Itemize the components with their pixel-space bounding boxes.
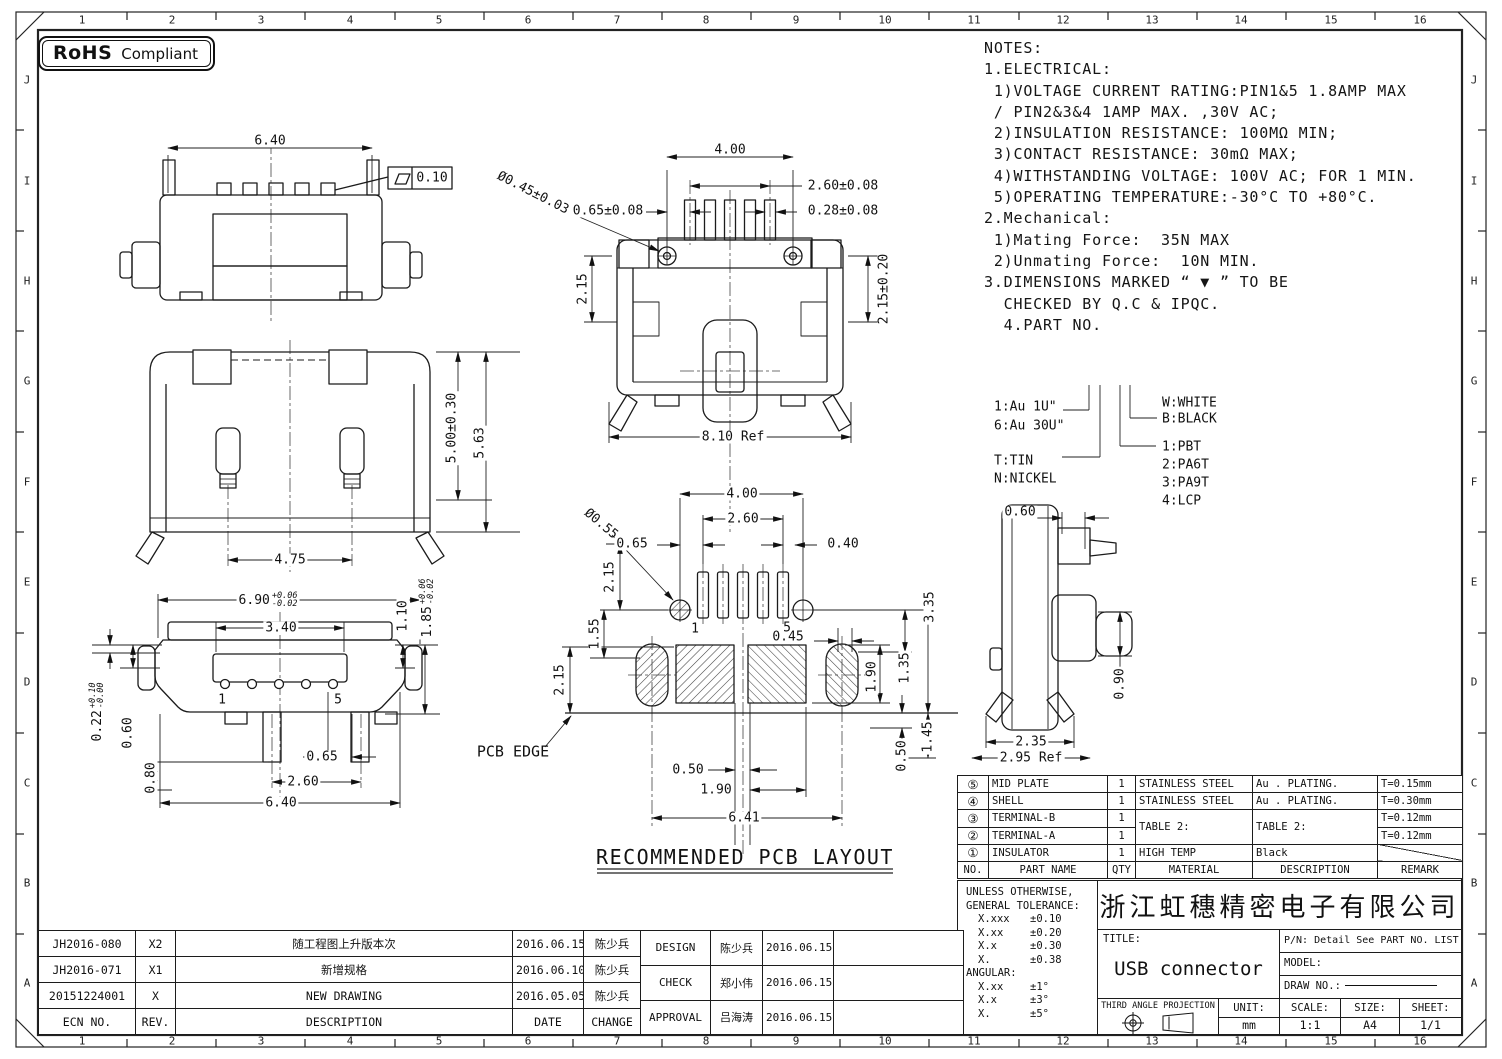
dim-front-3_40: 3.40	[263, 622, 298, 635]
draw-no-label: DRAW NO.:	[1284, 980, 1341, 992]
unit-value: mm	[1219, 1018, 1279, 1032]
dim-value: 1.85	[421, 606, 434, 637]
tree-color-option-1: W:WHITE	[1162, 396, 1217, 411]
rev-code: X1	[136, 957, 176, 983]
approval-table: DESIGN陈少兵2016.06.15 CHECK郑小伟2016.06.15 A…	[640, 930, 964, 1035]
ecn-no: JH2016-080	[39, 931, 136, 957]
dim-plan-0_65: 0.65±0.08	[571, 205, 645, 218]
zone-col-top: 13	[1145, 14, 1158, 27]
rohs-badge: RoHS Compliant	[38, 36, 215, 71]
revision-row: JH2016-071X1新增规格2016.06.10陈少兵	[39, 957, 641, 983]
rev-change-by: 陈少兵	[584, 983, 641, 1009]
projection-label: THIRD ANGLE PROJECTION	[1098, 1001, 1218, 1011]
note-line: 4.PART NO.	[984, 315, 1417, 336]
notes-block: NOTES: 1.ELECTRICAL: 1)VOLTAGE CURRENT R…	[984, 38, 1417, 336]
zone-col-top: 2	[169, 14, 176, 27]
pcb-edge-label: PCB EDGE	[477, 745, 549, 760]
dim-pcb-1_90-vert: 1.90	[866, 659, 879, 694]
dim-side-0_60: 0.60	[1002, 506, 1037, 519]
bom-part-name: TERMINAL-A	[989, 827, 1108, 844]
zone-row-right: G	[1471, 375, 1478, 388]
rev-date: 2016.06.15	[513, 931, 584, 957]
zone-col-bottom: 5	[436, 1035, 443, 1048]
bom-balloon: ③	[958, 810, 989, 827]
note-line: NOTES:	[984, 38, 1417, 59]
zone-row-left: F	[24, 476, 31, 489]
note-line: 5)OPERATING TEMPERATURE:-30°C TO +80°C.	[984, 187, 1417, 208]
zone-col-bottom: 16	[1413, 1035, 1426, 1048]
zone-row-left: D	[24, 676, 31, 689]
approval-blank	[834, 931, 964, 966]
third-angle-projection-icon	[1099, 1012, 1219, 1034]
zone-row-right: A	[1471, 977, 1478, 990]
front-pin5-label: 5	[334, 694, 342, 707]
tol-label: X.	[978, 1008, 1030, 1022]
bom-balloon: ②	[958, 827, 989, 844]
note-line: 4)WITHSTANDING VOLTAGE: 100V AC; FOR 1 M…	[984, 166, 1417, 187]
tree-material-option-4: 4:LCP	[1162, 494, 1201, 509]
tol-label: X.	[978, 954, 1030, 968]
rev-code: X2	[136, 931, 176, 957]
bom-description: Black	[1253, 844, 1378, 861]
zone-row-left: E	[24, 576, 31, 589]
rev-description: 新增规格	[176, 957, 513, 983]
zone-col-bottom: 13	[1145, 1035, 1158, 1048]
dim-front-2_60: 2.60	[285, 776, 320, 789]
zone-col-bottom: 7	[614, 1035, 621, 1048]
size-cell: SIZE:A4	[1340, 998, 1400, 1035]
dim-front-0_60: 0.60	[122, 715, 135, 750]
general-tolerance-block: UNLESS OTHERWISE, GENERAL TOLERANCE: X.x…	[957, 880, 1098, 1035]
drawing-title: USB connector	[1098, 958, 1279, 980]
approval-blank	[834, 1000, 964, 1035]
bom-balloon: ①	[958, 844, 989, 861]
zone-col-bottom: 1	[79, 1035, 86, 1048]
bom-header: REMARK	[1378, 861, 1463, 878]
title-label: TITLE:	[1103, 933, 1141, 945]
zone-col-top: 1	[79, 14, 86, 27]
bom-qty: 1	[1108, 810, 1136, 827]
bom-remark: T=0.30mm	[1378, 793, 1463, 810]
rohs-compliant-text: Compliant	[121, 45, 198, 63]
zone-col-bottom: 6	[525, 1035, 532, 1048]
note-line: 1)Mating Force: 35N MAX	[984, 230, 1417, 251]
rev-change-by: 陈少兵	[584, 931, 641, 957]
draw-no-cell: DRAW NO.:	[1279, 975, 1462, 999]
bom-table: ⑤MID PLATE1STAINLESS STEELAu . PLATING.T…	[957, 775, 1463, 879]
zone-col-top: 7	[614, 14, 621, 27]
tol-value: ±0.20	[1030, 927, 1062, 941]
tree-material-option-3: 3:PA9T	[1162, 476, 1209, 491]
bom-row: ⑤MID PLATE1STAINLESS STEELAu . PLATING.T…	[958, 776, 1463, 793]
sheet-label: SHEET:	[1400, 999, 1461, 1018]
dim-rear-5_00: 5.00±0.30	[446, 391, 459, 465]
tol-label: X.x	[978, 940, 1030, 954]
dim-side-0_90: 0.90	[1114, 666, 1127, 701]
dim-value: 0.22	[91, 710, 104, 741]
approval-role: DESIGN	[641, 931, 711, 966]
tol-lower: -0.02	[272, 600, 298, 608]
size-value: A4	[1341, 1018, 1399, 1032]
scale-value: 1:1	[1280, 1018, 1340, 1032]
bom-remark: T=0.15mm	[1378, 776, 1463, 793]
rev-header: DESCRIPTION	[176, 1009, 513, 1035]
zone-col-top: 5	[436, 14, 443, 27]
rev-description: 随工程图上升版本次	[176, 931, 513, 957]
zone-col-bottom: 10	[878, 1035, 891, 1048]
note-line: CHECKED BY Q.C & IPQC.	[984, 294, 1417, 315]
bom-header: NO.	[958, 861, 989, 878]
zone-col-top: 15	[1324, 14, 1337, 27]
tol-value: ±3°	[1030, 994, 1049, 1008]
bom-part-name: INSULATOR	[989, 844, 1108, 861]
dim-front-6_90: 6.90+0.06-0.02	[237, 592, 300, 608]
zone-row-left: G	[24, 375, 31, 388]
zone-row-right: D	[1471, 676, 1478, 689]
dim-pcb-1_45: 1.45	[922, 719, 935, 754]
dim-plan-2_15-right: 2.15±0.20	[878, 252, 891, 326]
approval-name: 郑小伟	[711, 965, 763, 1000]
front-pin1-label: 1	[218, 694, 226, 707]
zone-col-top: 3	[258, 14, 265, 27]
bom-header: QTY	[1108, 861, 1136, 878]
tol-lower: -0.02	[427, 579, 435, 605]
dim-pcb-6_41: 6.41	[726, 812, 761, 825]
angular-title: ANGULAR:	[966, 967, 1097, 981]
zone-row-left: I	[24, 175, 31, 188]
dim-side-2_35: 2.35	[1013, 736, 1048, 749]
tree-plating-option-2: 6:Au 30U"	[994, 419, 1064, 434]
rev-code: X	[136, 983, 176, 1009]
zone-row-right: E	[1471, 576, 1478, 589]
bom-remark: T=0.12mm	[1378, 810, 1463, 827]
note-line: 2)INSULATION RESISTANCE: 100MΩ MIN;	[984, 123, 1417, 144]
bom-material: TABLE 2:	[1136, 810, 1253, 844]
tol-lower: -0.00	[97, 683, 105, 709]
tol-value: ±0.30	[1030, 940, 1062, 954]
zone-col-top: 14	[1234, 14, 1247, 27]
zone-col-bottom: 4	[347, 1035, 354, 1048]
dim-pcb-2_60: 2.60	[725, 513, 760, 526]
dim-pcb-1_55: 1.55	[589, 616, 602, 651]
bom-header: PART NAME	[989, 861, 1108, 878]
zone-row-right: F	[1471, 476, 1478, 489]
bom-description: TABLE 2:	[1253, 810, 1378, 844]
bom-remark-blank	[1378, 844, 1463, 861]
tol-label: X.xx	[978, 927, 1030, 941]
dim-front-1_10: 1.10	[397, 598, 410, 633]
zone-col-top: 6	[525, 14, 532, 27]
bom-part-name: TERMINAL-B	[989, 810, 1108, 827]
approval-row: CHECK郑小伟2016.06.15	[641, 965, 964, 1000]
title-block: UNLESS OTHERWISE, GENERAL TOLERANCE: X.x…	[957, 880, 1462, 1035]
approval-role: APPROVAL	[641, 1000, 711, 1035]
tol-value: ±1°	[1030, 981, 1049, 995]
rev-header: DATE	[513, 1009, 584, 1035]
bom-qty: 1	[1108, 827, 1136, 844]
dim-pcb-2_15-lower: 2.15	[554, 662, 567, 697]
dim-flatness-value: 0.10	[416, 172, 447, 185]
revision-row: 20151224001XNEW DRAWING2016.05.05陈少兵	[39, 983, 641, 1009]
projection-cell: THIRD ANGLE PROJECTION	[1097, 998, 1219, 1035]
bom-description: Au . PLATING.	[1253, 793, 1378, 810]
bom-header: MATERIAL	[1136, 861, 1253, 878]
pcb-pin1-label: 1	[691, 623, 699, 636]
zone-col-top: 9	[793, 14, 800, 27]
ecn-no: JH2016-071	[39, 957, 136, 983]
dim-value: 6.90	[239, 594, 270, 607]
approval-blank	[834, 965, 964, 1000]
zone-col-bottom: 2	[169, 1035, 176, 1048]
zone-row-left: H	[24, 275, 31, 288]
dim-front-0_22: 0.22+0.10-0.00	[89, 681, 105, 744]
zone-row-right: H	[1471, 275, 1478, 288]
dim-front-6_40: 6.40	[263, 797, 298, 810]
zone-row-right: J	[1471, 74, 1478, 87]
part-number-cell: P/N: Detail See PART NO. LIST	[1279, 929, 1462, 953]
rohs-bold-text: RoHS	[53, 42, 112, 64]
revision-header-row: ECN NO.REV.DESCRIPTIONDATECHANGE	[39, 1009, 641, 1035]
dim-front-0_80: 0.80	[145, 760, 158, 795]
scale-cell: SCALE:1:1	[1279, 998, 1341, 1035]
zone-col-top: 12	[1056, 14, 1069, 27]
zone-col-top: 11	[967, 14, 980, 27]
rev-date: 2016.05.05	[513, 983, 584, 1009]
zone-col-top: 10	[878, 14, 891, 27]
rev-header: CHANGE	[584, 1009, 641, 1035]
dim-pcb-4_00: 4.00	[724, 488, 759, 501]
ecn-no: 20151224001	[39, 983, 136, 1009]
dim-plan-2_15-left: 2.15	[577, 271, 590, 306]
dim-rear-4_75: 4.75	[272, 554, 307, 567]
dim-pcb-3_35: 3.35	[924, 589, 937, 624]
note-line: / PIN2&3&4 1AMP MAX. ,30V AC;	[984, 102, 1417, 123]
unit-cell: UNIT:mm	[1218, 998, 1280, 1035]
dim-plan-2_60: 2.60±0.08	[806, 180, 880, 193]
zone-row-left: A	[24, 977, 31, 990]
zone-col-bottom: 15	[1324, 1035, 1337, 1048]
bom-description: Au . PLATING.	[1253, 776, 1378, 793]
dim-pcb-0_40: 0.40	[825, 538, 860, 551]
zone-col-top: 4	[347, 14, 354, 27]
tolerance-title: UNLESS OTHERWISE,	[966, 886, 1097, 900]
rev-header: REV.	[136, 1009, 176, 1035]
tree-terminal-option-1: T:TIN	[994, 454, 1033, 469]
tol-value: ±0.10	[1030, 913, 1062, 927]
approval-name: 陈少兵	[711, 931, 763, 966]
bom-part-name: SHELL	[989, 793, 1108, 810]
approval-date: 2016.06.15	[763, 965, 834, 1000]
zone-row-left: C	[24, 777, 31, 790]
tree-material-option-1: 1:PBT	[1162, 440, 1201, 455]
dim-side-2_95-ref: 2.95 Ref	[998, 752, 1065, 765]
bom-material: STAINLESS STEEL	[1136, 793, 1253, 810]
approval-role: CHECK	[641, 965, 711, 1000]
bom-balloon: ④	[958, 793, 989, 810]
zone-col-bottom: 12	[1056, 1035, 1069, 1048]
rev-description: NEW DRAWING	[176, 983, 513, 1009]
dim-pcb-0_50-bottom: 0.50	[670, 764, 705, 777]
note-line: 2.Mechanical:	[984, 208, 1417, 229]
tol-value: ±5°	[1030, 1008, 1049, 1022]
dim-front-0_65: 0.65	[304, 751, 339, 764]
approval-row: APPROVAL吕海涛2016.06.15	[641, 1000, 964, 1035]
bom-material: STAINLESS STEEL	[1136, 776, 1253, 793]
tol-label: X.xx	[978, 981, 1030, 995]
zone-row-left: J	[24, 74, 31, 87]
zone-row-right: B	[1471, 877, 1478, 890]
approval-name: 吕海涛	[711, 1000, 763, 1035]
approval-date: 2016.06.15	[763, 931, 834, 966]
dim-pcb-1_35: 1.35	[899, 650, 912, 685]
rev-header: ECN NO.	[39, 1009, 136, 1035]
note-line: 1)VOLTAGE CURRENT RATING:PIN1&5 1.8AMP M…	[984, 81, 1417, 102]
tree-color-option-2: B:BLACK	[1162, 412, 1217, 427]
tolerance-title: GENERAL TOLERANCE:	[966, 900, 1097, 914]
bom-qty: 1	[1108, 793, 1136, 810]
dim-pcb-0_65: 0.65	[614, 538, 649, 551]
tree-plating-option-1: 1:Au 1U"	[994, 400, 1057, 415]
tol-value: ±0.38	[1030, 954, 1062, 968]
drawing-title-cell: TITLE: USB connector	[1097, 929, 1280, 999]
draw-no-blank-line	[1345, 985, 1437, 986]
bom-row: ①INSULATOR1HIGH TEMPBlack	[958, 844, 1463, 861]
dim-pcb-0_50-right: 0.50	[896, 738, 909, 773]
dim-topview-width: 6.40	[252, 135, 287, 148]
drawing-sheet: 12345678910111213141516 1234567891011121…	[0, 0, 1502, 1059]
bom-material: HIGH TEMP	[1136, 844, 1253, 861]
zone-col-bottom: 9	[793, 1035, 800, 1048]
dim-pcb-2_15-upper: 2.15	[604, 559, 617, 594]
dim-plan-0_28: 0.28±0.08	[806, 205, 880, 218]
zone-col-bottom: 3	[258, 1035, 265, 1048]
note-line: 1.ELECTRICAL:	[984, 59, 1417, 80]
pcb-pin5-label: 5	[783, 622, 791, 635]
sheet-cell: SHEET:1/1	[1399, 998, 1462, 1035]
bom-part-name: MID PLATE	[989, 776, 1108, 793]
zone-row-left: B	[24, 877, 31, 890]
model-cell: MODEL:	[1279, 952, 1462, 976]
tree-material-option-2: 2:PA6T	[1162, 458, 1209, 473]
dim-plan-4_00: 4.00	[712, 144, 747, 157]
rev-change-by: 陈少兵	[584, 957, 641, 983]
company-name: 浙江虹穗精密电子有限公司	[1097, 880, 1462, 930]
revision-row: JH2016-080X2随工程图上升版本次2016.06.15陈少兵	[39, 931, 641, 957]
dim-front-1_85: 1.85+0.06-0.02	[419, 577, 435, 640]
connector-views	[120, 160, 1132, 762]
zone-col-top: 16	[1413, 14, 1426, 27]
revision-table: JH2016-080X2随工程图上升版本次2016.06.15陈少兵 JH201…	[38, 930, 641, 1035]
note-line: 3.DIMENSIONS MARKED “ ▼ ” TO BE	[984, 272, 1417, 293]
bom-remark: T=0.12mm	[1378, 827, 1463, 844]
approval-date: 2016.06.15	[763, 1000, 834, 1035]
size-label: SIZE:	[1341, 999, 1399, 1018]
bom-header-row: NO.PART NAMEQTYMATERIALDESCRIPTIONREMARK	[958, 861, 1463, 878]
dim-rear-5_63: 5.63	[474, 425, 487, 460]
tree-terminal-option-2: N:NICKEL	[994, 472, 1057, 487]
zone-col-top: 8	[703, 14, 710, 27]
bom-header: DESCRIPTION	[1253, 861, 1378, 878]
bom-qty: 1	[1108, 844, 1136, 861]
bom-row: ④SHELL1STAINLESS STEELAu . PLATING.T=0.3…	[958, 793, 1463, 810]
tol-label: X.xxx	[978, 913, 1030, 927]
approval-row: DESIGN陈少兵2016.06.15	[641, 931, 964, 966]
unit-label: UNIT:	[1219, 999, 1279, 1018]
zone-col-bottom: 8	[703, 1035, 710, 1048]
bom-row: ③TERMINAL-B1TABLE 2:TABLE 2:T=0.12mm	[958, 810, 1463, 827]
zone-row-right: I	[1471, 175, 1478, 188]
tol-label: X.x	[978, 994, 1030, 1008]
zone-row-right: C	[1471, 777, 1478, 790]
zone-col-bottom: 11	[967, 1035, 980, 1048]
scale-label: SCALE:	[1280, 999, 1340, 1018]
dim-pcb-1_90-bottom: 1.90	[698, 784, 733, 797]
bom-balloon: ⑤	[958, 776, 989, 793]
pcb-layout-caption: RECOMMENDED PCB LAYOUT	[596, 847, 894, 867]
zone-col-bottom: 14	[1234, 1035, 1247, 1048]
sheet-value: 1/1	[1400, 1018, 1461, 1032]
rev-date: 2016.06.10	[513, 957, 584, 983]
note-line: 2)Unmating Force: 10N MIN.	[984, 251, 1417, 272]
dim-plan-8_10-ref: 8.10 Ref	[700, 431, 767, 444]
note-line: 3)CONTACT RESISTANCE: 30mΩ MAX;	[984, 144, 1417, 165]
bom-qty: 1	[1108, 776, 1136, 793]
